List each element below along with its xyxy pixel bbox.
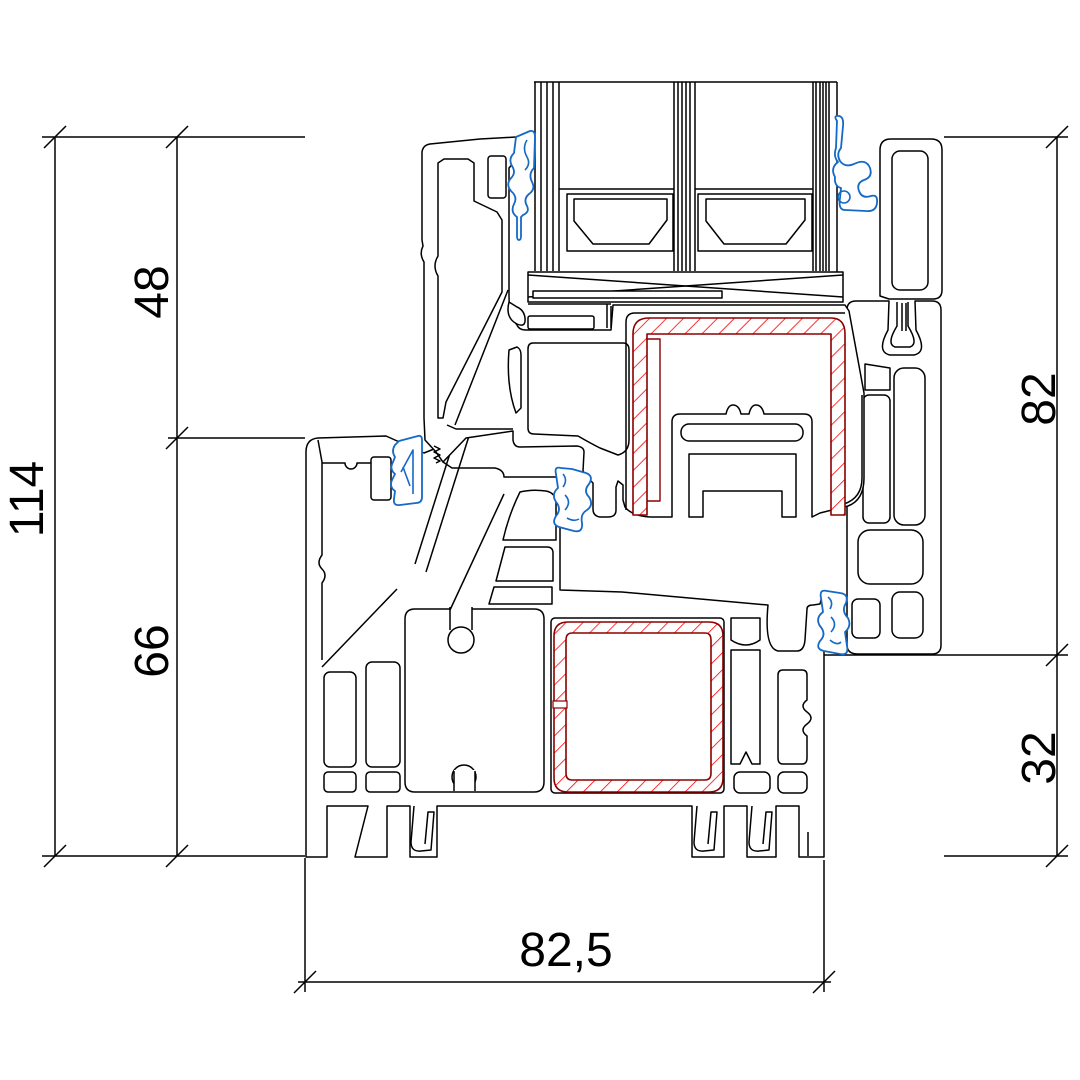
svg-text:66: 66 bbox=[126, 624, 179, 677]
svg-text:82: 82 bbox=[1013, 372, 1066, 425]
svg-text:48: 48 bbox=[126, 265, 179, 318]
svg-text:32: 32 bbox=[1013, 731, 1066, 784]
svg-text:82,5: 82,5 bbox=[519, 924, 612, 977]
svg-text:114: 114 bbox=[1, 461, 54, 538]
